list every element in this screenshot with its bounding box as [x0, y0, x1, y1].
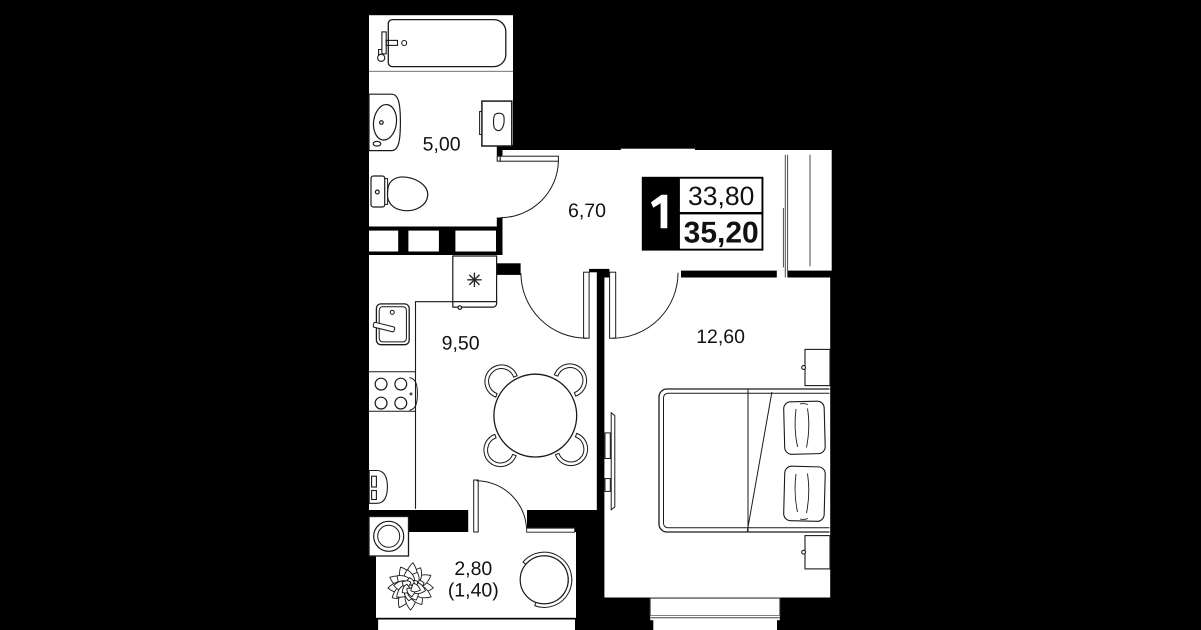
svg-text:(1,40): (1,40) [448, 580, 499, 602]
svg-text:6,70: 6,70 [568, 200, 606, 222]
svg-text:5,00: 5,00 [423, 133, 461, 155]
svg-text:9,50: 9,50 [442, 333, 480, 355]
svg-text:2,80: 2,80 [454, 558, 492, 580]
svg-text:33,80: 33,80 [688, 181, 754, 211]
svg-text:35,20: 35,20 [684, 217, 759, 250]
svg-text:12,60: 12,60 [696, 326, 745, 348]
